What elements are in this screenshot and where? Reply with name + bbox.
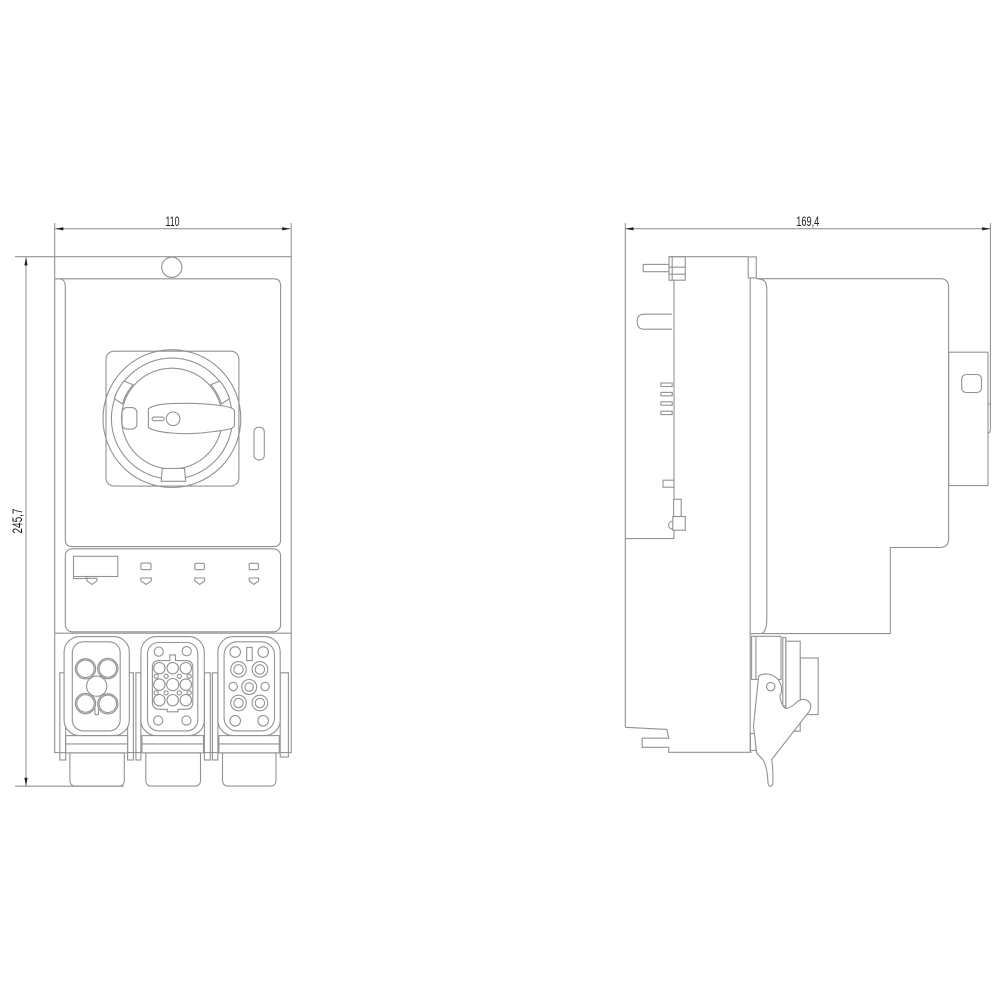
svg-text:169,4: 169,4 bbox=[796, 214, 819, 229]
svg-text:110: 110 bbox=[166, 214, 180, 229]
svg-text:245,7: 245,7 bbox=[10, 509, 25, 534]
